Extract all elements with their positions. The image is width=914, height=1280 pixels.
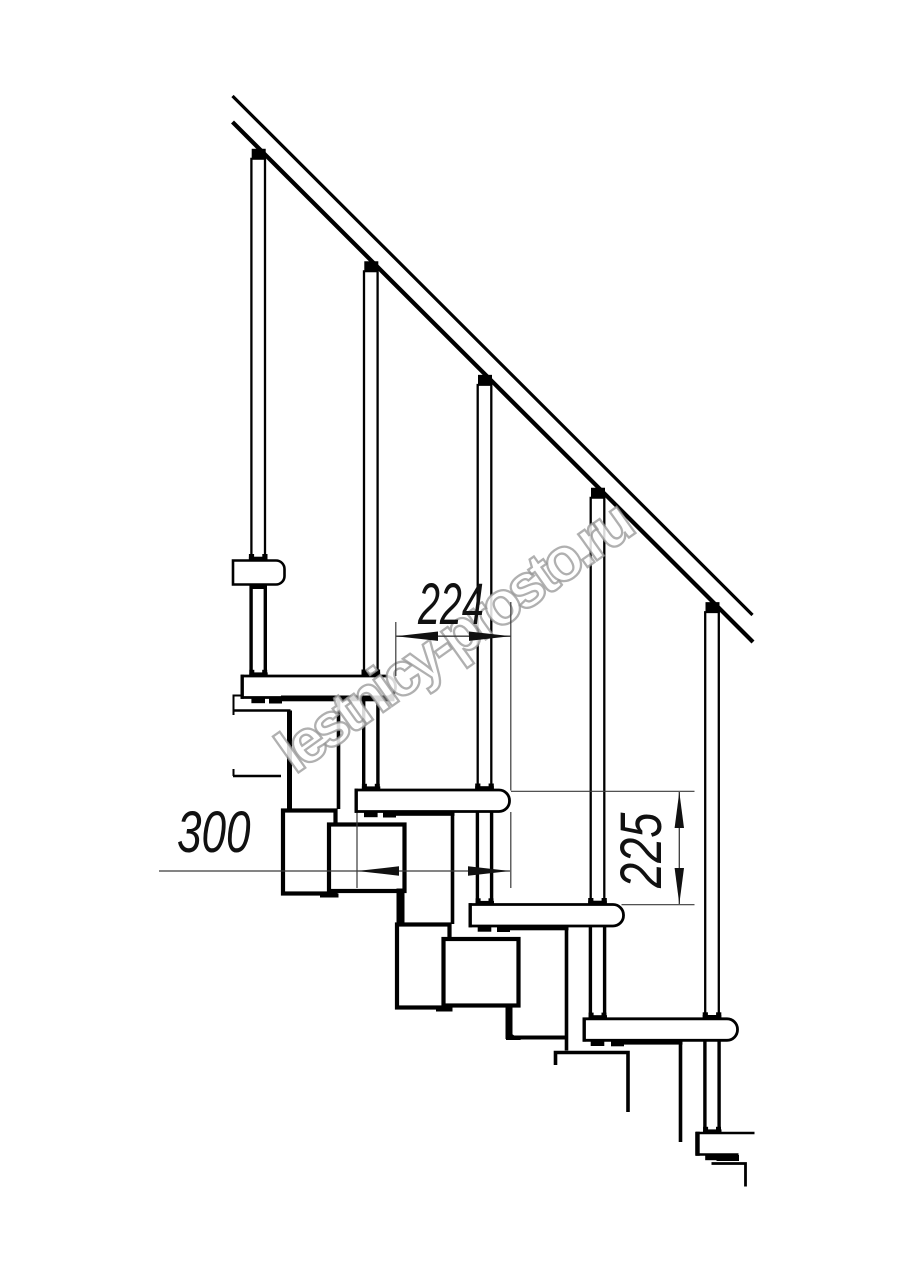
svg-text:224: 224	[417, 571, 484, 636]
svg-text:300: 300	[177, 799, 251, 864]
svg-text:225: 225	[610, 812, 675, 889]
